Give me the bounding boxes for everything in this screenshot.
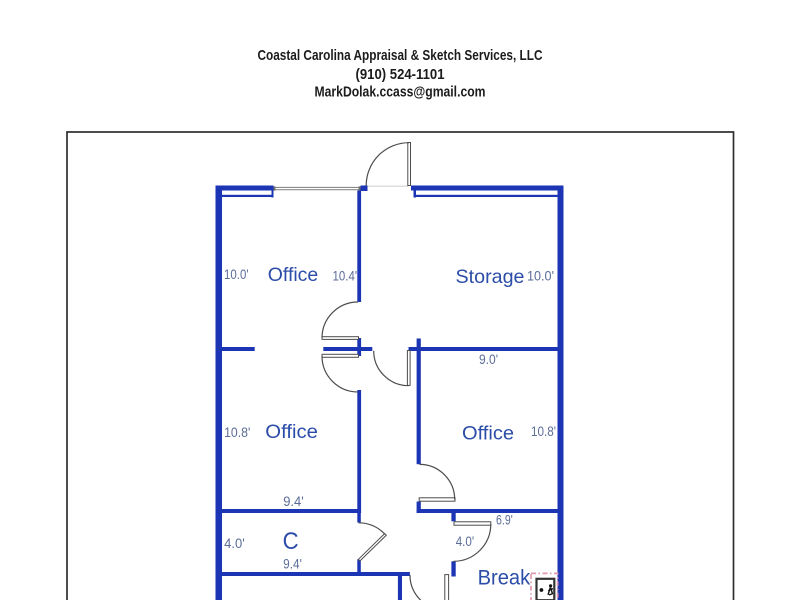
svg-text:9.0': 9.0' xyxy=(479,352,498,367)
svg-text:Office: Office xyxy=(265,421,318,443)
svg-text:9.4': 9.4' xyxy=(283,557,302,572)
svg-text:4.0': 4.0' xyxy=(456,534,474,549)
svg-text:Office: Office xyxy=(268,264,319,286)
svg-text:Office: Office xyxy=(462,423,514,445)
svg-text:10.0': 10.0' xyxy=(527,269,554,284)
svg-text:6.9': 6.9' xyxy=(496,513,513,528)
svg-text:Coastal Carolina Appraisal & S: Coastal Carolina Appraisal & Sketch Serv… xyxy=(258,47,543,64)
svg-text:10.0': 10.0' xyxy=(224,267,249,282)
svg-text:10.4': 10.4' xyxy=(333,269,358,284)
svg-text:10.8': 10.8' xyxy=(224,425,250,440)
svg-text:10.8': 10.8' xyxy=(531,424,556,439)
svg-text:Break: Break xyxy=(478,567,531,590)
svg-text:(910) 524-1101: (910) 524-1101 xyxy=(356,66,445,83)
svg-text:MarkDolak.ccass@gmail.com: MarkDolak.ccass@gmail.com xyxy=(315,84,486,101)
svg-text:Storage: Storage xyxy=(456,266,525,288)
svg-text:9.4': 9.4' xyxy=(283,494,304,509)
svg-text:C: C xyxy=(283,528,299,555)
svg-text:4.0': 4.0' xyxy=(224,536,245,551)
